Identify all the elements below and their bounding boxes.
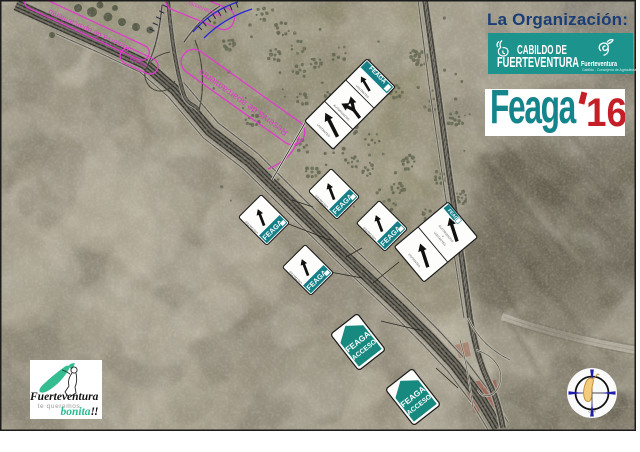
svg-text:GMR: GMR [589, 410, 597, 414]
